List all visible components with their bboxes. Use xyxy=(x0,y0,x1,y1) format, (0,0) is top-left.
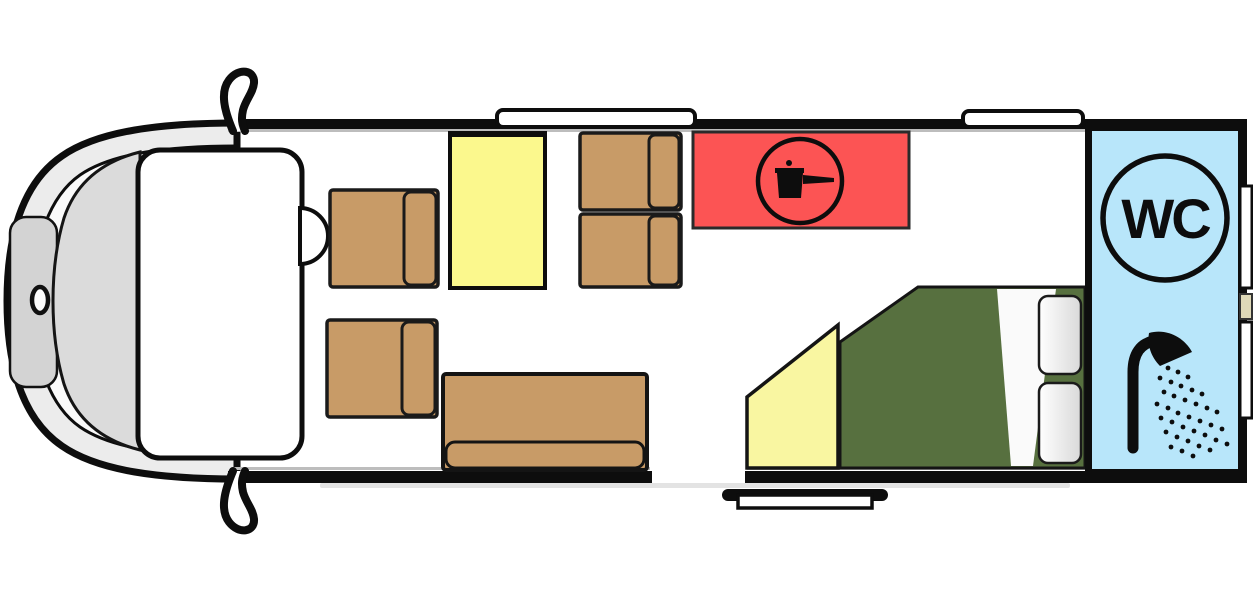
dinette-table xyxy=(450,131,545,288)
motorhome-floorplan: WC xyxy=(0,0,1253,600)
seat-backrest xyxy=(649,216,679,285)
bottom-wall-left-segment xyxy=(228,471,652,483)
swivel-seat-bottom xyxy=(327,320,437,417)
dinette-seat-lower xyxy=(580,214,681,287)
pot-body xyxy=(777,173,803,198)
wc-label: WC xyxy=(1121,187,1210,250)
seat-backrest xyxy=(649,135,679,208)
swivel-seat-top xyxy=(330,190,438,287)
entry-step xyxy=(722,489,888,508)
rear-door-window-top xyxy=(1240,186,1252,288)
seat-backrest xyxy=(404,192,436,285)
roof-window-front xyxy=(497,110,695,127)
table-top xyxy=(450,133,545,288)
bed-pillow-top xyxy=(1039,296,1081,374)
roof-window-rear xyxy=(963,111,1083,127)
dinette-seat-upper xyxy=(580,133,681,210)
pot-lid xyxy=(775,168,804,173)
driver-cab xyxy=(7,123,328,479)
table-top-edge xyxy=(450,131,545,137)
under-wall-shadow xyxy=(320,483,1070,488)
bed-pillow-bottom xyxy=(1039,383,1081,463)
brand-logo-icon xyxy=(32,287,48,313)
rear-door-fittings xyxy=(1240,186,1252,418)
pot-lid-knob xyxy=(786,160,792,166)
bathroom: WC xyxy=(1085,122,1247,482)
wardrobe-wedge xyxy=(747,325,838,468)
kitchen-block xyxy=(693,132,909,228)
sofa-bench xyxy=(443,374,647,470)
cab-interior xyxy=(138,150,302,458)
rear-door-window-bottom xyxy=(1240,322,1252,418)
seat-backrest xyxy=(402,322,435,415)
sofa-front-edge xyxy=(446,442,644,468)
rear-bed xyxy=(840,287,1085,468)
rear-door-handle xyxy=(1240,294,1252,319)
swivel-table-half-disc xyxy=(300,208,328,264)
entry-step-tread xyxy=(738,495,872,508)
